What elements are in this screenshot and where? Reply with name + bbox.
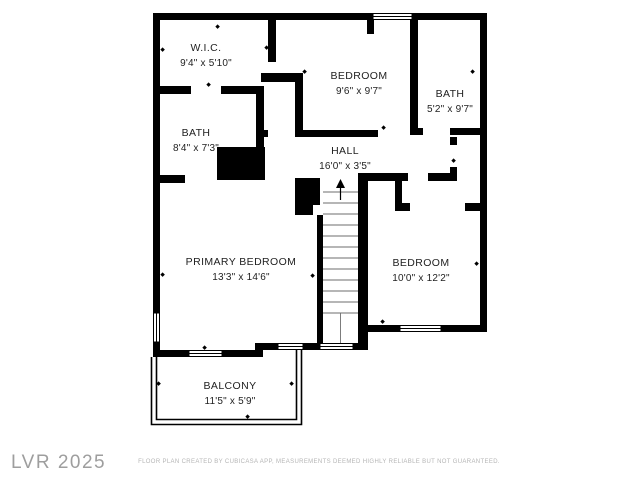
room-name: BATH bbox=[427, 87, 473, 102]
room-label-primary-bedroom: PRIMARY BEDROOM 13'3" x 14'6" bbox=[186, 255, 297, 285]
stair-treads bbox=[323, 192, 358, 343]
door-ticks bbox=[154, 24, 479, 419]
watermark-lvr-2025: LVR 2025 bbox=[11, 452, 106, 474]
window bbox=[400, 326, 441, 332]
room-name: BATH bbox=[173, 126, 219, 141]
room-label-bath-right: BATH 5'2" x 9'7" bbox=[427, 87, 473, 117]
room-dimensions: 10'0" x 12'2" bbox=[392, 271, 449, 286]
room-name: BALCONY bbox=[204, 379, 257, 394]
room-label-bedroom-top: BEDROOM 9'6" x 9'7" bbox=[330, 69, 387, 99]
room-dimensions: 9'4" x 5'10" bbox=[180, 56, 232, 71]
room-dimensions: 16'0" x 3'5" bbox=[319, 159, 371, 174]
room-label-bath-left: BATH 8'4" x 7'3" bbox=[173, 126, 219, 156]
room-label-bedroom-right: BEDROOM 10'0" x 12'2" bbox=[392, 256, 449, 286]
room-name: BEDROOM bbox=[392, 256, 449, 271]
room-dimensions: 13'3" x 14'6" bbox=[186, 270, 297, 285]
window bbox=[154, 313, 160, 342]
room-dimensions: 9'6" x 9'7" bbox=[330, 84, 387, 99]
window bbox=[278, 344, 303, 350]
room-dimensions: 8'4" x 7'3" bbox=[173, 141, 219, 156]
room-label-hall: HALL 16'0" x 3'5" bbox=[319, 144, 371, 174]
room-dimensions: 11'5" x 5'9" bbox=[204, 394, 257, 409]
room-dimensions: 5'2" x 9'7" bbox=[427, 102, 473, 117]
room-name: HALL bbox=[319, 144, 371, 159]
wall-notch bbox=[313, 205, 320, 215]
window bbox=[320, 344, 353, 350]
stairs-up-arrow-icon bbox=[336, 179, 345, 200]
stairs bbox=[323, 179, 358, 343]
room-name: BEDROOM bbox=[330, 69, 387, 84]
window bbox=[373, 14, 412, 20]
floor-plan-page: W.I.C. 9'4" x 5'10" BEDROOM 9'6" x 9'7" … bbox=[0, 0, 640, 480]
floor-plan-drawing bbox=[0, 0, 640, 480]
balcony-slider-door bbox=[189, 351, 222, 357]
room-label-balcony: BALCONY 11'5" x 5'9" bbox=[204, 379, 257, 409]
room-name: W.I.C. bbox=[180, 41, 232, 56]
room-name: PRIMARY BEDROOM bbox=[186, 255, 297, 270]
room-label-wic: W.I.C. 9'4" x 5'10" bbox=[180, 41, 232, 71]
cubicasa-disclaimer: FLOOR PLAN CREATED BY CUBICASA APP, MEAS… bbox=[138, 459, 500, 465]
